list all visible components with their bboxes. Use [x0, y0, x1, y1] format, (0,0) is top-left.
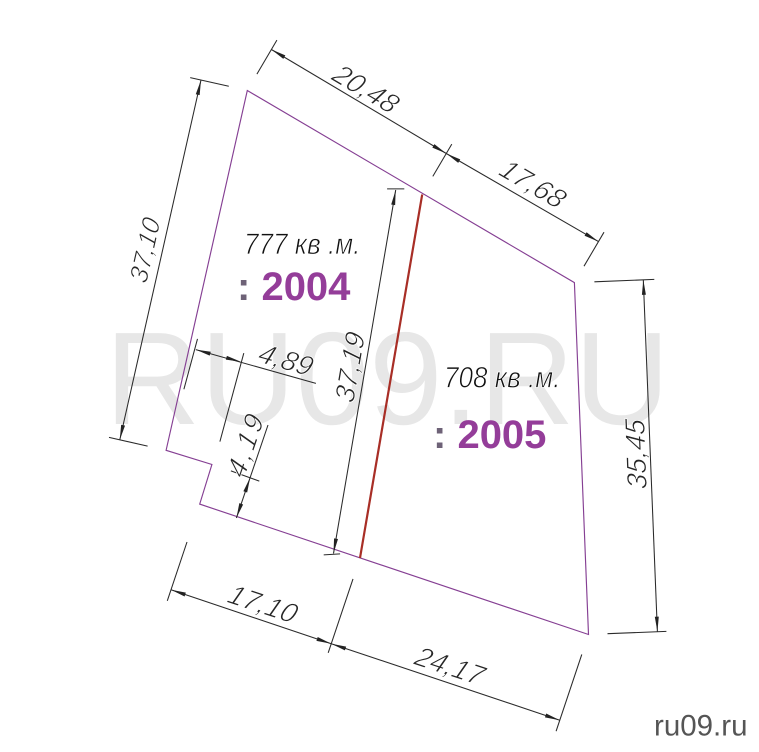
svg-text:37,10: 37,10 [123, 213, 166, 287]
svg-text:ru09.ru: ru09.ru [654, 710, 747, 743]
svg-text:777 кв .м.: 777 кв .м. [244, 227, 360, 260]
svg-text:35,45: 35,45 [619, 418, 653, 490]
svg-text:20,48: 20,48 [326, 58, 406, 119]
svg-text:17,10: 17,10 [223, 579, 303, 629]
svg-text:708 кв .м.: 708 кв .м. [444, 361, 560, 394]
svg-text:17,68: 17,68 [494, 154, 573, 215]
svg-text:: 2005: : 2005 [433, 413, 546, 457]
svg-text:RU09.RU: RU09.RU [105, 305, 670, 452]
svg-text:: 2004: : 2004 [237, 265, 351, 309]
